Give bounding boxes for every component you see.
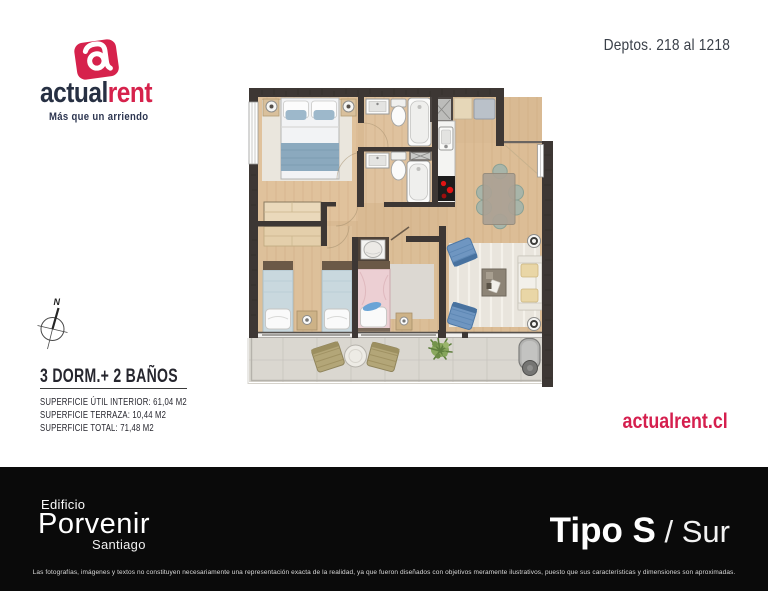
svg-text:N: N <box>54 297 61 307</box>
